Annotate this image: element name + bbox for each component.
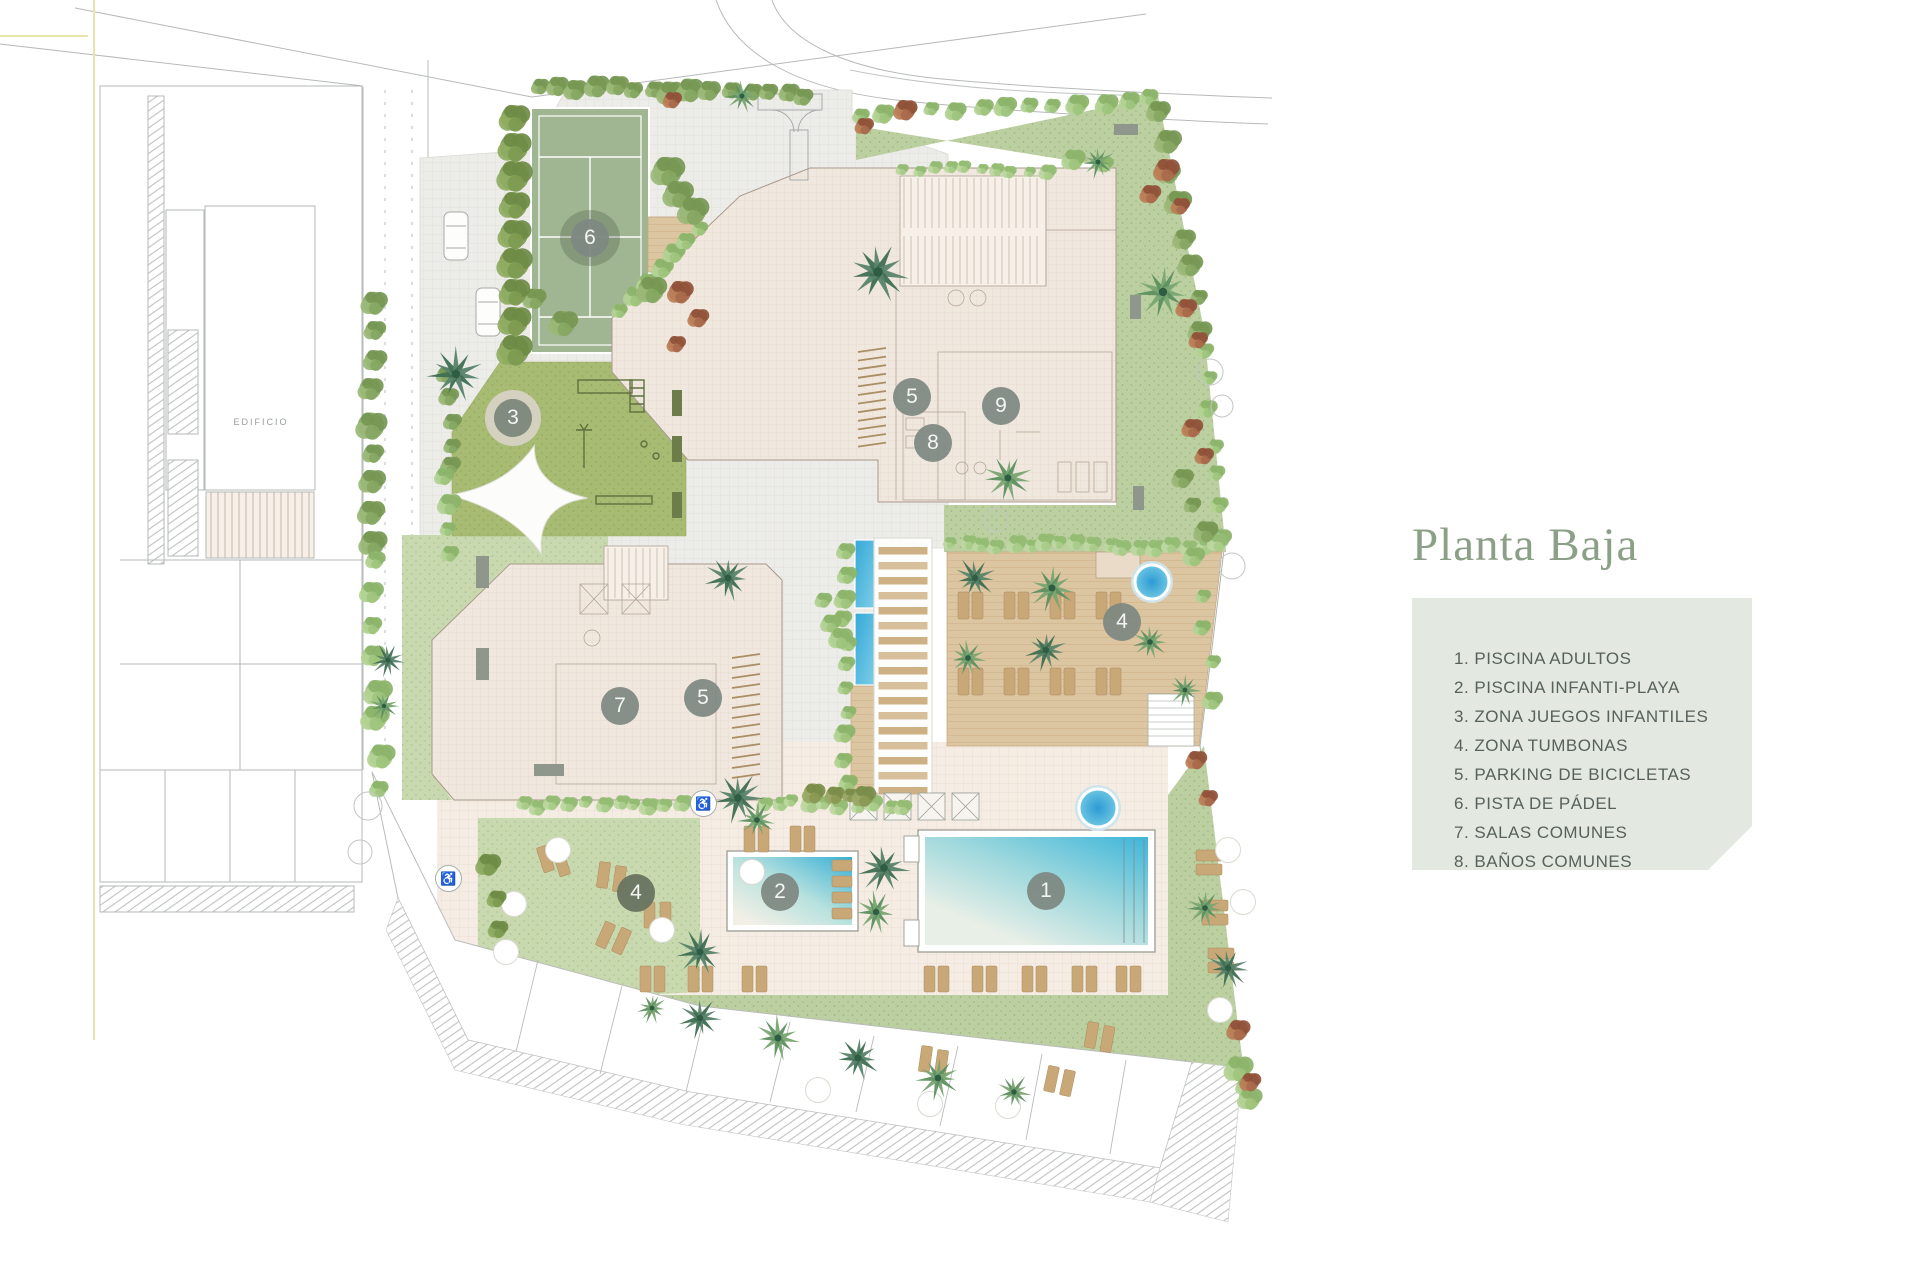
parcel-boundary-line bbox=[0, 0, 94, 1040]
accessible-access-icon: ♿ bbox=[690, 790, 717, 817]
marker-zona-juegos-infantiles: 3 bbox=[494, 399, 532, 437]
marker-zona-tumbonas-deck: 4 bbox=[1103, 603, 1141, 641]
marker-salas-comunes: 7 bbox=[601, 687, 639, 725]
plunge-pool-south bbox=[1075, 785, 1121, 831]
accessible-access-icon: ♿ bbox=[435, 865, 462, 892]
marker-parking-bicicletas-oeste: 5 bbox=[684, 679, 722, 717]
marker-banos-comunes: 8 bbox=[914, 424, 952, 462]
marker-piscina-adultos: 1 bbox=[1027, 872, 1065, 910]
legend-item: 1. PISCINA ADULTOS bbox=[1454, 644, 1752, 673]
legend-item: 3. ZONA JUEGOS INFANTILES bbox=[1454, 702, 1752, 731]
pergola bbox=[874, 538, 932, 795]
legend-box: 1. PISCINA ADULTOS2. PISCINA INFANTI-PLA… bbox=[1412, 598, 1752, 870]
tumbonas-deck bbox=[947, 552, 1222, 746]
marker-pista-padel: 6 bbox=[571, 219, 609, 257]
legend-item: 4. ZONA TUMBONAS bbox=[1454, 731, 1752, 760]
marker-parking-bicicletas-norte: 5 bbox=[893, 378, 931, 416]
legend-item: 2. PISCINA INFANTI-PLAYA bbox=[1454, 673, 1752, 702]
legend-item: 7. SALAS COMUNES bbox=[1454, 818, 1752, 847]
playground-benches bbox=[672, 390, 682, 518]
site-plan-canvas: EDIFICIO 12344556789 ♿♿ Planta Baja 1. P… bbox=[0, 0, 1920, 1280]
legend-list: 1. PISCINA ADULTOS2. PISCINA INFANTI-PLA… bbox=[1454, 644, 1752, 905]
legend-item: 5. PARKING DE BICICLETAS bbox=[1454, 760, 1752, 789]
marker-zona-tumbonas-lawn: 4 bbox=[617, 874, 655, 912]
marker-piscina-infanti-playa: 2 bbox=[761, 873, 799, 911]
neighbor-building-label: EDIFICIO bbox=[196, 417, 326, 427]
marker-gimnasio: 9 bbox=[982, 387, 1020, 425]
legend-title: Planta Baja bbox=[1412, 518, 1638, 572]
plunge-pool-deck bbox=[1131, 561, 1173, 603]
legend-item: 6. PISTA DE PÁDEL bbox=[1454, 789, 1752, 818]
neighbor-building bbox=[100, 86, 362, 912]
